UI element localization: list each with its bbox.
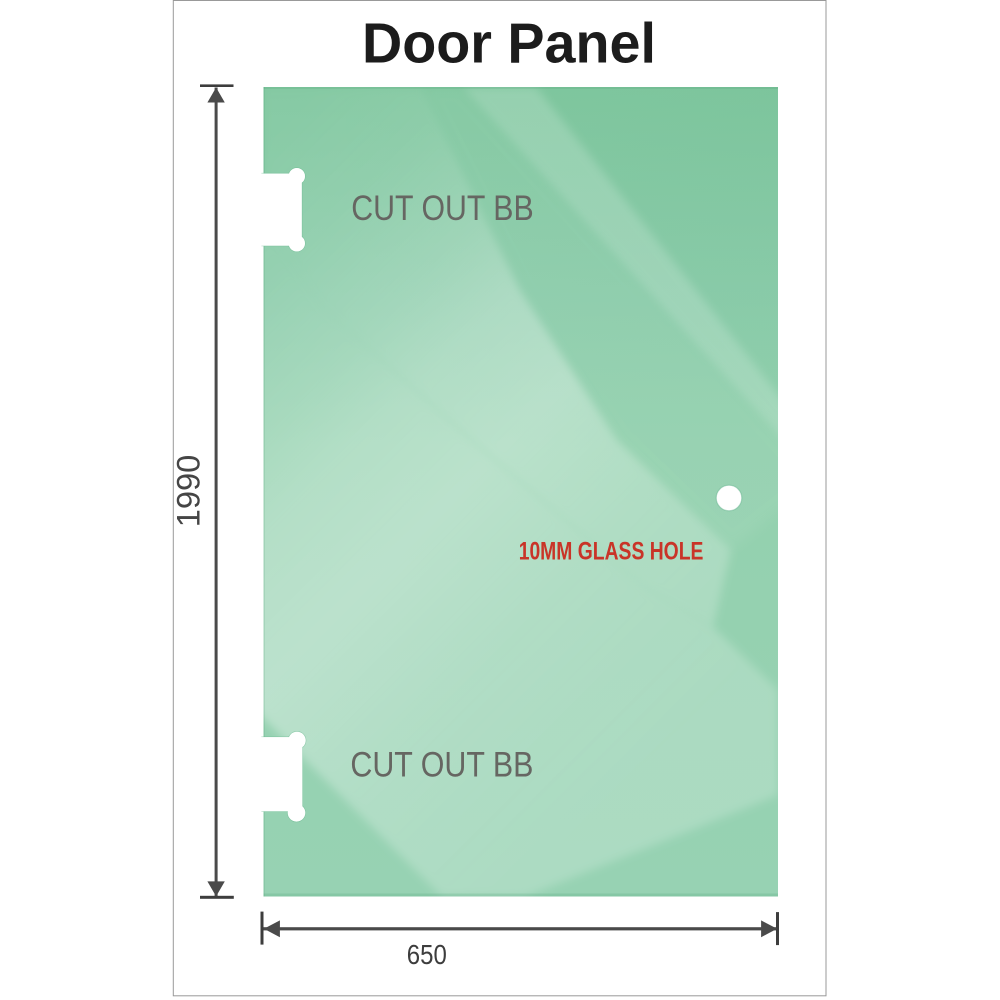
svg-text:CUT OUT BB: CUT OUT BB xyxy=(350,745,533,784)
svg-text:Door Panel: Door Panel xyxy=(362,12,656,76)
svg-text:1990: 1990 xyxy=(171,455,207,528)
svg-text:650: 650 xyxy=(407,939,447,970)
svg-text:10MM GLASS HOLE: 10MM GLASS HOLE xyxy=(519,537,704,565)
svg-text:CUT OUT BB: CUT OUT BB xyxy=(351,189,533,228)
